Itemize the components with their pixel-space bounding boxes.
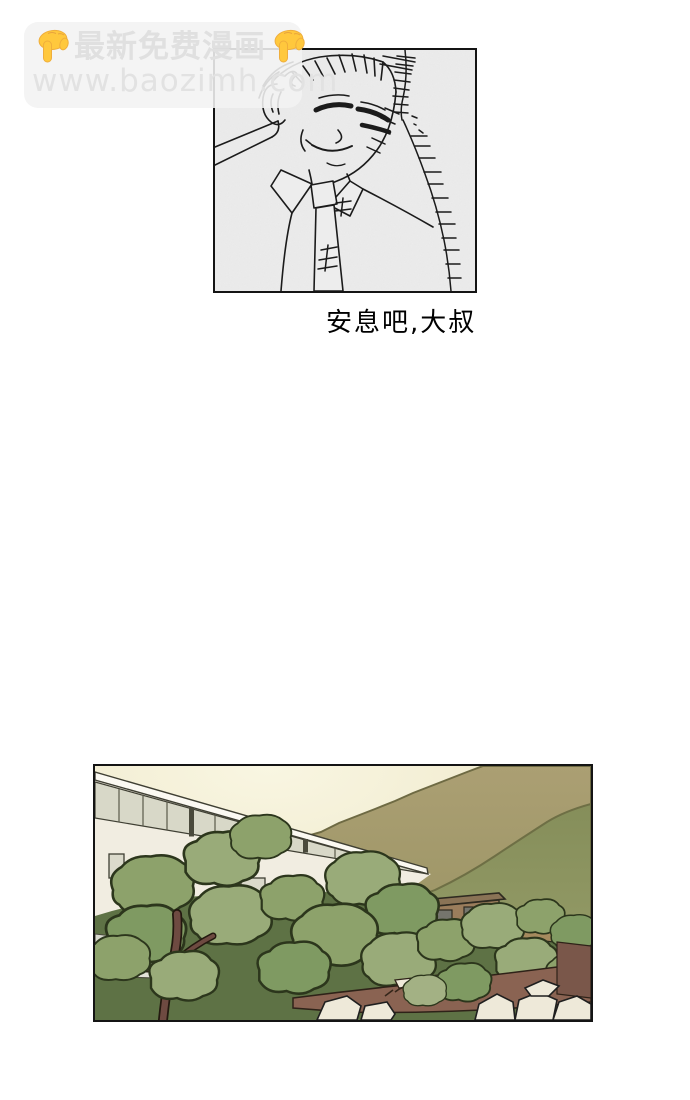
comic-panel-landscape[interactable] [93,764,593,1022]
paper-grain [215,50,475,291]
landscape-drawing [95,766,591,1020]
portrait-drawing [215,50,475,291]
comic-panel-portrait[interactable] [213,48,477,293]
comic-reader-page: { "watermark": { "line1": "最新免费漫画", "lin… [0,0,690,1100]
panel-caption: 安息吧,大叔 [326,302,476,339]
point-down-emoji-icon [34,28,70,66]
